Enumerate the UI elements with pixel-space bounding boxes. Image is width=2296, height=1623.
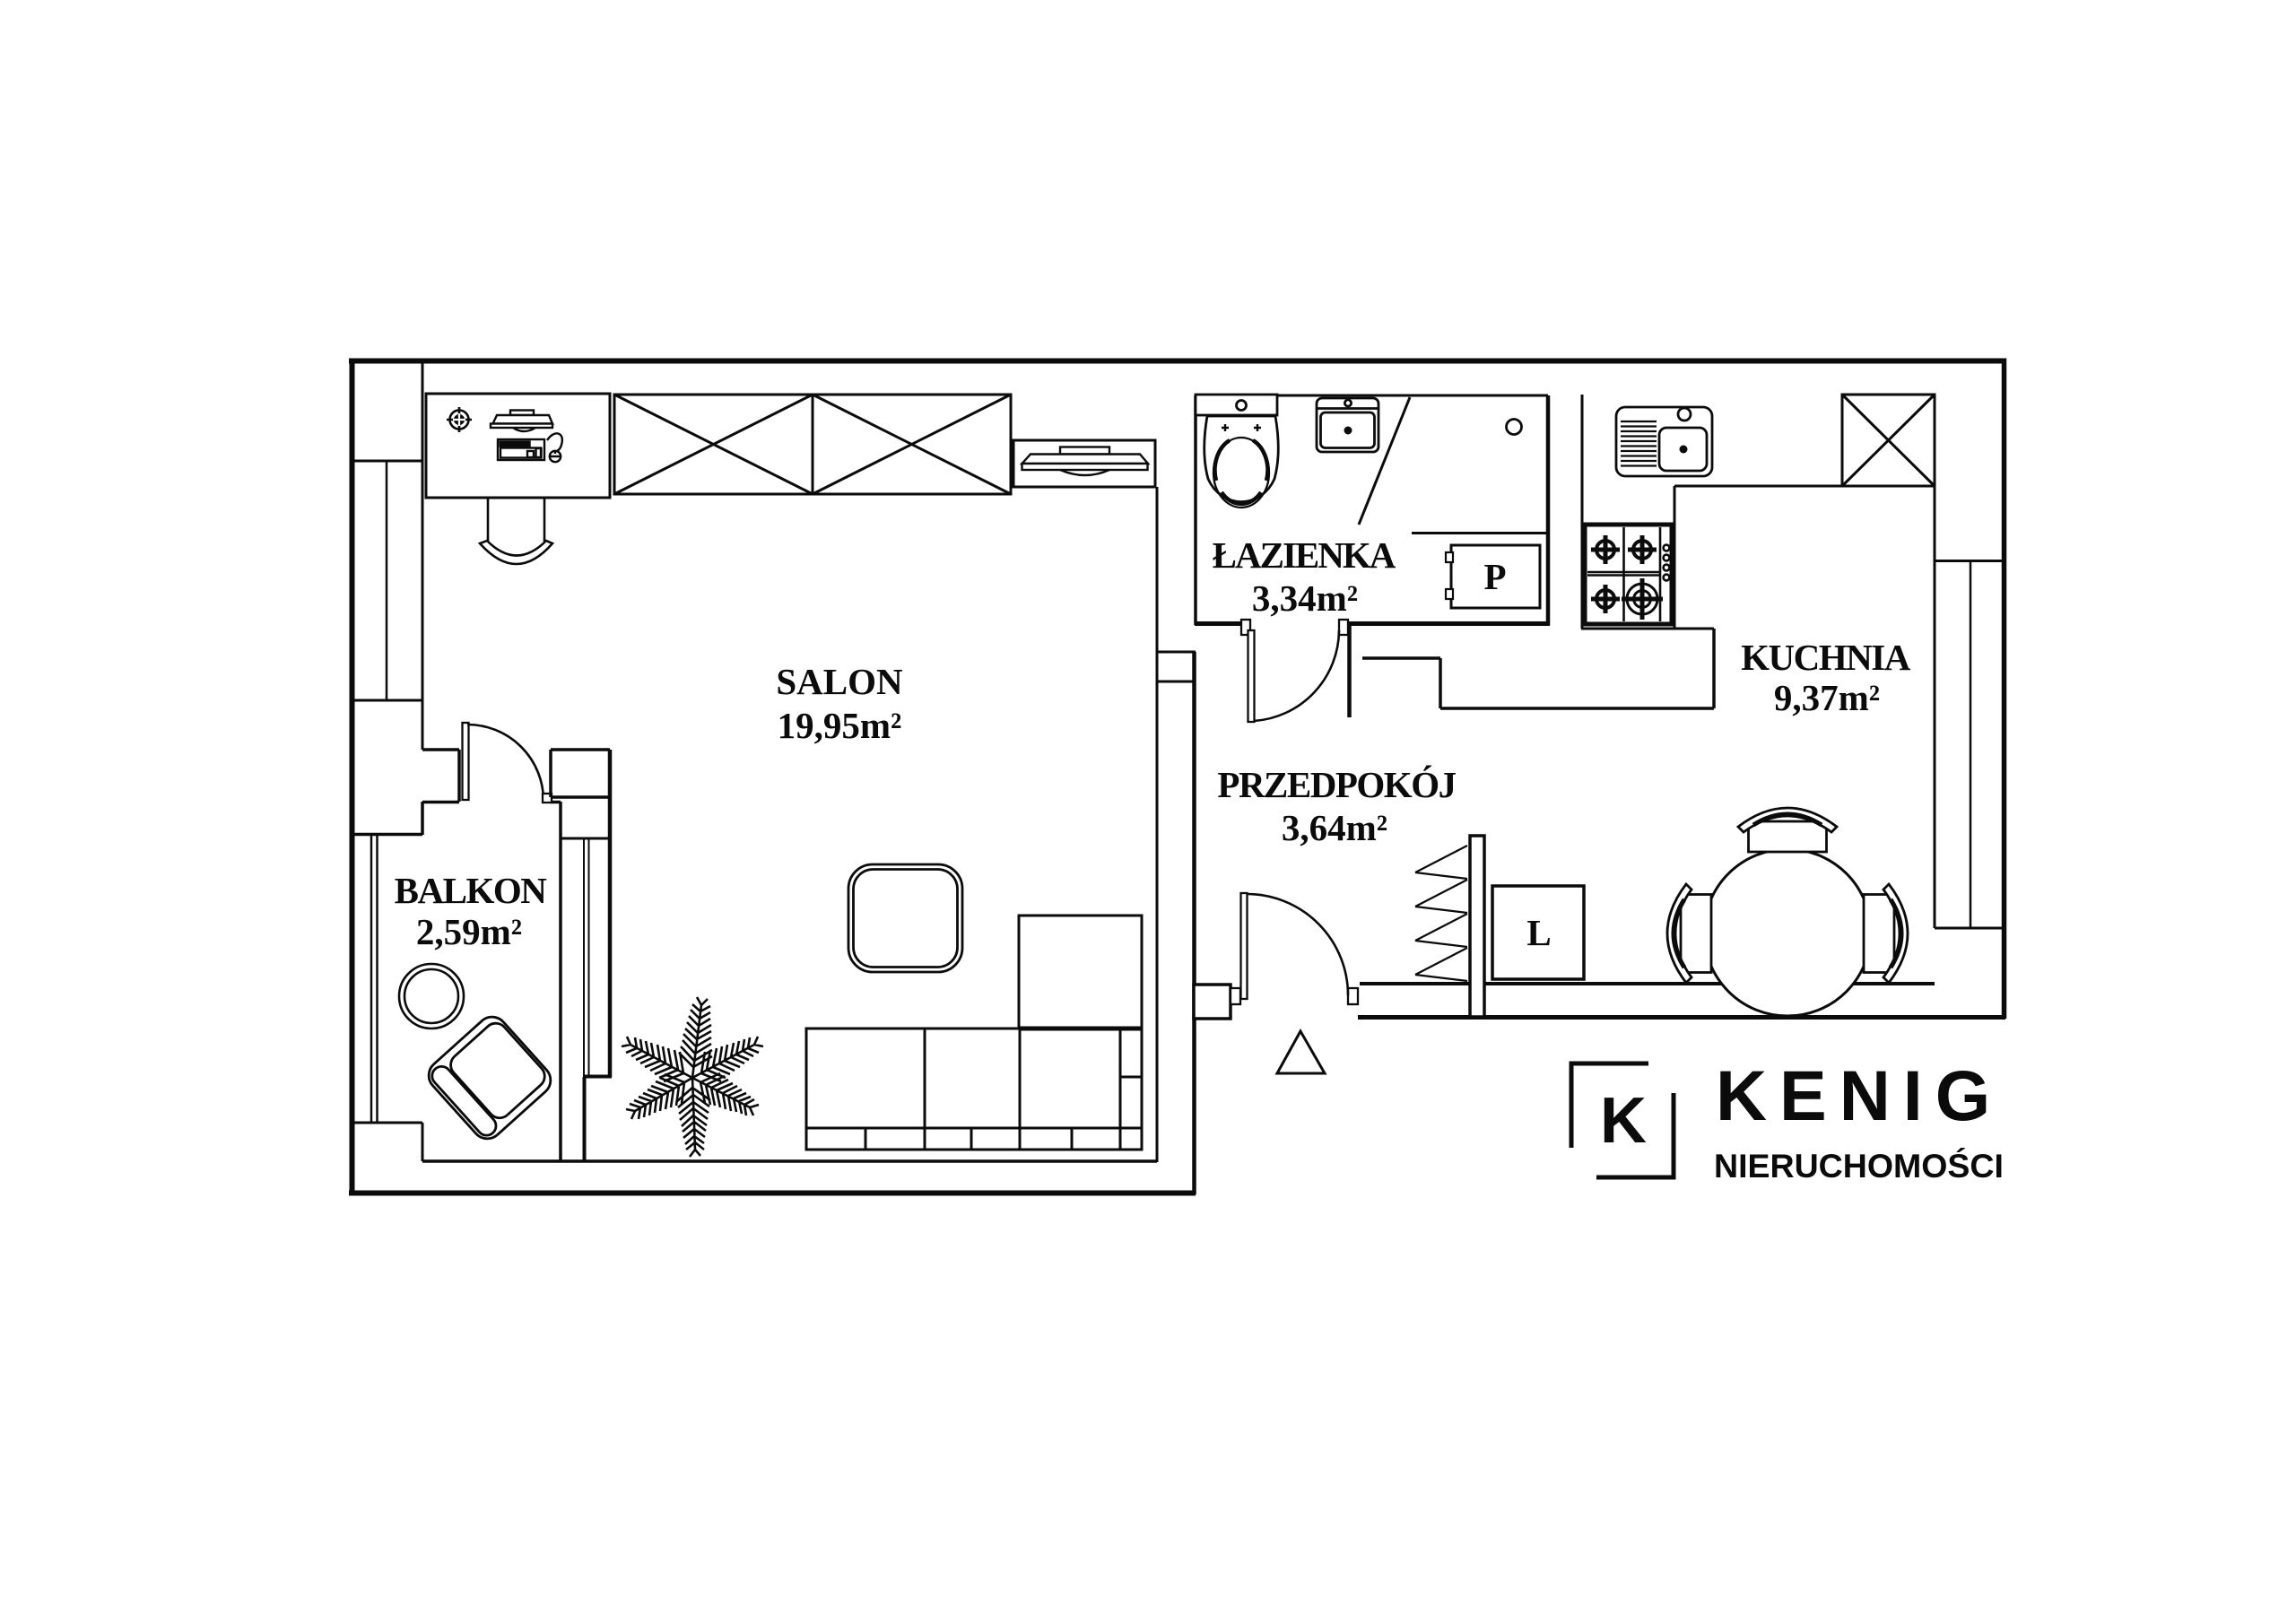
svg-text:P: P xyxy=(1483,556,1506,597)
svg-text:ŁAZIENKA: ŁAZIENKA xyxy=(1213,534,1396,576)
svg-text:3,64m²: 3,64m² xyxy=(1282,807,1387,848)
svg-text:KENIG: KENIG xyxy=(1716,1055,2003,1135)
svg-text:3,34m²: 3,34m² xyxy=(1252,577,1358,619)
svg-text:9,37m²: 9,37m² xyxy=(1774,677,1880,718)
svg-text:NIERUCHOMOŚCI: NIERUCHOMOŚCI xyxy=(1714,1147,2004,1185)
svg-text:L: L xyxy=(1526,912,1551,953)
svg-text:19,95m²: 19,95m² xyxy=(778,705,902,746)
svg-text:BALKON: BALKON xyxy=(395,870,548,911)
svg-text:2,59m²: 2,59m² xyxy=(416,911,522,952)
svg-text:PRZEDPOKÓJ: PRZEDPOKÓJ xyxy=(1217,764,1456,805)
svg-text:SALON: SALON xyxy=(776,661,903,702)
svg-text:KUCHNIA: KUCHNIA xyxy=(1741,637,1911,678)
svg-text:K: K xyxy=(1600,1085,1647,1157)
